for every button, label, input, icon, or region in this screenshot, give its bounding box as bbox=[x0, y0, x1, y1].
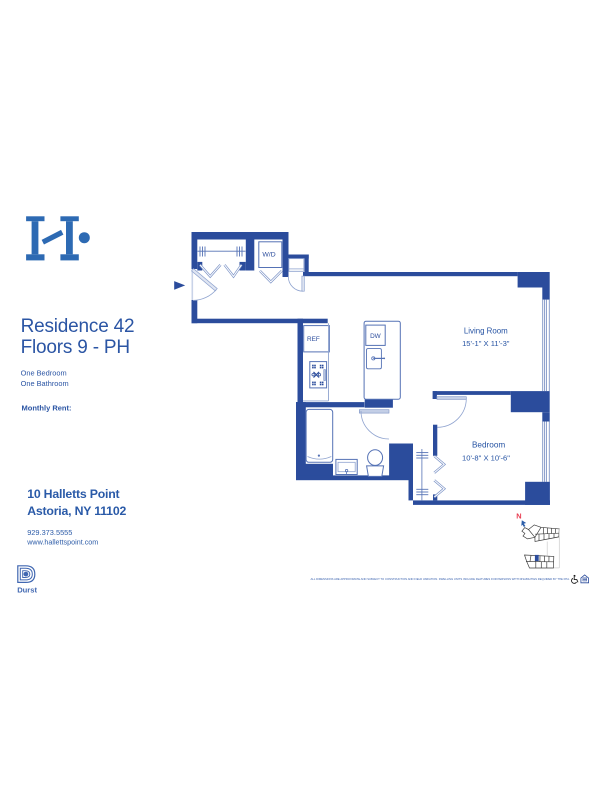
svg-text:929.373.5555: 929.373.5555 bbox=[27, 528, 72, 537]
svg-text:Astoria, NY 11102: Astoria, NY 11102 bbox=[27, 504, 126, 518]
svg-text:One Bathroom: One Bathroom bbox=[21, 379, 69, 388]
svg-text:Living Room: Living Room bbox=[464, 326, 508, 335]
svg-text:One Bedroom: One Bedroom bbox=[21, 368, 67, 377]
svg-text:Monthly Rent:: Monthly Rent: bbox=[22, 404, 72, 413]
svg-text:www.hallettspoint.com: www.hallettspoint.com bbox=[26, 538, 98, 547]
svg-text:15'-1" X 11'-3": 15'-1" X 11'-3" bbox=[462, 339, 510, 348]
svg-text:REF: REF bbox=[307, 336, 320, 343]
svg-text:ALL DIMENSIONS ARE APPROXIMATE: ALL DIMENSIONS ARE APPROXIMATE AND SUBJE… bbox=[311, 577, 571, 581]
svg-text:N: N bbox=[516, 512, 521, 521]
svg-text:Residence 42: Residence 42 bbox=[21, 316, 135, 337]
svg-text:Durst: Durst bbox=[17, 585, 37, 594]
svg-text:10 Halletts Point: 10 Halletts Point bbox=[27, 487, 119, 501]
svg-text:DW: DW bbox=[370, 333, 382, 340]
svg-text:10'-8" X 10'-6": 10'-8" X 10'-6" bbox=[462, 454, 510, 463]
svg-text:Floors 9 - PH: Floors 9 - PH bbox=[21, 337, 130, 358]
svg-text:W/D: W/D bbox=[262, 251, 275, 258]
svg-text:Bedroom: Bedroom bbox=[472, 440, 505, 449]
